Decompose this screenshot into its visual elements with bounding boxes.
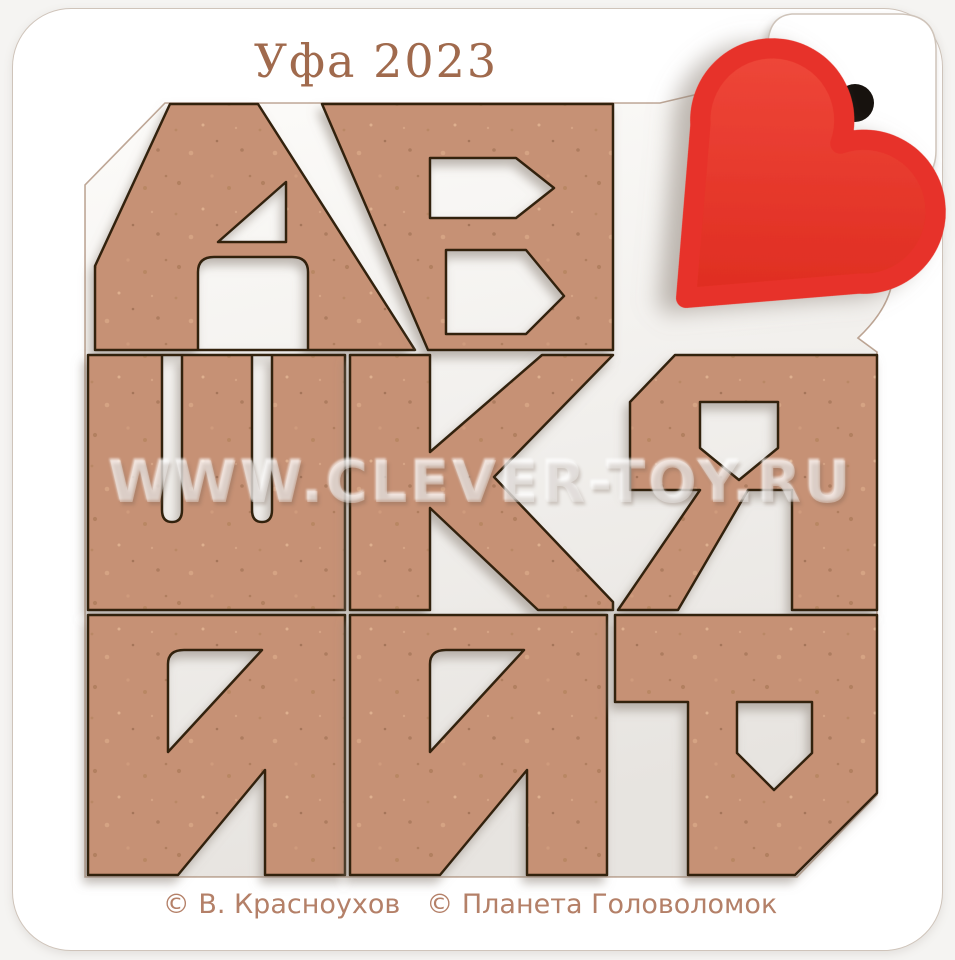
- credits-line: © В. Красноухов © Планета Головоломок: [163, 889, 778, 920]
- photo-title: Уфа 2023: [254, 34, 498, 88]
- product-photo: Уфа 2023 WWW.CLEVER-TOY.RU © В. Красноух…: [0, 0, 955, 960]
- watermark-text: WWW.CLEVER-TOY.RU: [109, 450, 854, 516]
- credit-author: © В. Красноухов: [163, 889, 401, 920]
- credit-publisher: © Планета Головоломок: [426, 889, 777, 920]
